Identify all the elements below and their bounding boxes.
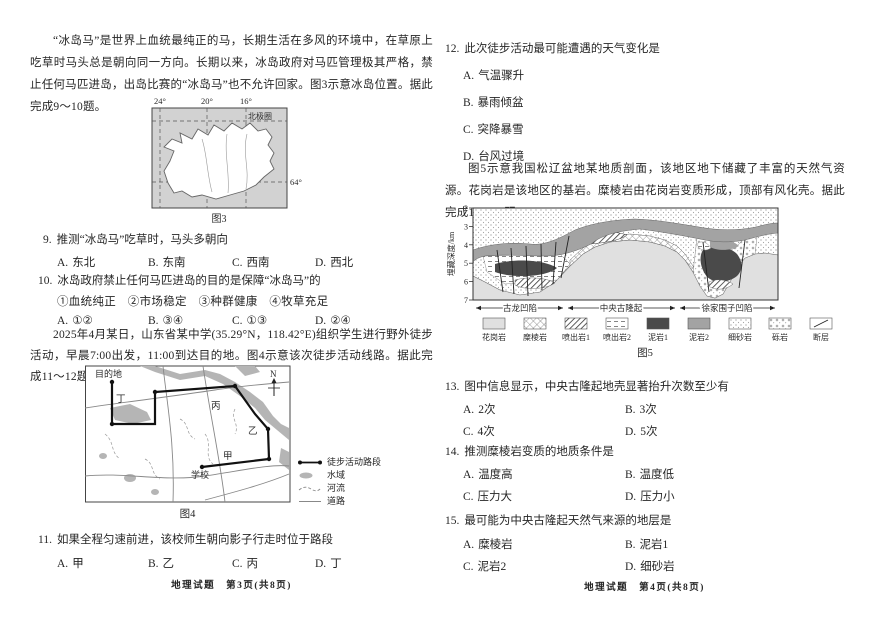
svg-text:花岗岩: 花岗岩 — [482, 332, 506, 342]
svg-text:6: 6 — [464, 278, 468, 287]
q14-option-b: B.温度低 — [625, 466, 674, 482]
figure-5-caption: 图5 — [445, 345, 845, 360]
q12-option-c: C.突降暴雪 — [463, 121, 524, 137]
destination-label: 目的地 — [95, 368, 122, 379]
svg-text:喷出岩2: 喷出岩2 — [603, 332, 631, 342]
question-9: 9.推测“冰岛马”吃草时，马头多朝向 — [43, 231, 228, 247]
question-10: 10.冰岛政府禁止任何马匹进岛的目的是保障“冰岛马”的 — [38, 272, 321, 288]
question-12-number: 12. — [445, 43, 459, 55]
question-14-stem: 推测糜棱岩变质的地质条件是 — [464, 446, 614, 458]
figure-5-legend: 花岗岩 糜棱岩 喷出岩1 喷出岩2 泥岩1 泥岩2 细砂岩 砾岩 断层 — [482, 318, 832, 342]
question-13-number: 13. — [445, 381, 459, 393]
q14-option-a: A.温度高 — [463, 466, 513, 482]
question-11-number: 11. — [38, 534, 52, 546]
q14-option-c: C.压力大 — [463, 488, 512, 504]
page-footer-right: 地理试题 第4页(共8页) — [443, 579, 846, 593]
question-15-stem: 最可能为中央古隆起天然气来源的地层是 — [464, 515, 671, 527]
figure-4-hiking-map: 目的地 丁 丙 乙 甲 学校 N — [85, 364, 430, 522]
figure-4-legend: 徒步活动路段 水域 河流 道路 — [297, 456, 381, 508]
legend-river: 河流 — [297, 482, 381, 495]
svg-text:断层: 断层 — [813, 332, 829, 342]
question-15-options-row1: A.糜棱岩 B.泥岩1 — [445, 536, 848, 552]
question-12-stem: 此次徒步活动最可能遭遇的天气变化是 — [464, 43, 660, 55]
question-9-stem: 推测“冰岛马”吃草时，马头多朝向 — [57, 234, 228, 246]
svg-text:7: 7 — [464, 296, 468, 305]
svg-text:古龙凹陷: 古龙凹陷 — [503, 303, 537, 313]
lon-tick-24: 24° — [154, 96, 166, 106]
question-10-stem: 冰岛政府禁止任何马匹进岛的目的是保障“冰岛马”的 — [57, 275, 320, 287]
question-14-options-row2: C.压力大 D.压力小 — [445, 488, 848, 504]
svg-text:糜棱岩: 糜棱岩 — [523, 332, 547, 342]
svg-text:5: 5 — [464, 259, 468, 268]
figure-4-caption: 图4 — [85, 506, 290, 521]
q15-option-b: B.泥岩1 — [625, 536, 668, 552]
svg-text:3: 3 — [464, 222, 468, 231]
segment-yi-label: 乙 — [248, 426, 258, 437]
svg-text:砾岩: 砾岩 — [772, 332, 788, 342]
svg-text:泥岩2: 泥岩2 — [689, 332, 709, 342]
svg-text:中央古隆起: 中央古隆起 — [600, 303, 643, 313]
q11-option-c: C.丙 — [232, 555, 258, 571]
section-body — [473, 208, 778, 300]
figure-3-caption: 图3 — [212, 213, 227, 225]
q14-option-d: D.压力小 — [625, 488, 675, 504]
question-13-options-row2: C.4次 D.5次 — [445, 423, 848, 439]
q11-option-d: D.丁 — [315, 555, 342, 571]
question-11-stem: 如果全程匀速前进，该校师生朝向影子行走时位于路段 — [57, 534, 333, 546]
question-11: 11.如果全程匀速前进，该校师生朝向影子行走时位于路段 — [38, 531, 333, 547]
tick-marks — [469, 208, 473, 300]
legend-road: 道路 — [297, 495, 381, 508]
svg-text:徐家围子凹陷: 徐家围子凹陷 — [701, 303, 752, 313]
q15-option-c: C.泥岩2 — [463, 558, 506, 574]
question-10-number: 10. — [38, 275, 52, 287]
route-symbol-icon — [297, 458, 323, 467]
lon-tick-20: 20° — [201, 96, 213, 106]
map-frame — [86, 366, 291, 502]
geologic-section-svg: 埋藏深度/km 2 3 4 5 6 7 — [445, 204, 845, 344]
question-15-number: 15. — [445, 515, 459, 527]
q15-option-d: D.细砂岩 — [625, 558, 675, 574]
q9-option-b: B.东南 — [148, 254, 186, 270]
segment-jia-label: 甲 — [223, 451, 233, 462]
question-10-circled-items: ①血统纯正 ②市场稳定 ③种群健康 ④牧草充足 — [57, 293, 328, 309]
svg-text:2: 2 — [464, 204, 468, 213]
question-14-options-row1: A.温度高 B.温度低 — [445, 466, 848, 482]
q12-option-a: A.气温骤升 — [463, 67, 524, 83]
q13-option-a: A.2次 — [463, 401, 495, 417]
svg-text:泥岩1: 泥岩1 — [648, 332, 668, 342]
q12-option-b: B.暴雨倾盆 — [463, 94, 524, 110]
question-14-number: 14. — [445, 446, 459, 458]
water-symbol-icon — [297, 471, 323, 480]
question-11-options: A.甲 B.乙 C.丙 D.丁 — [30, 555, 433, 571]
q13-option-b: B.3次 — [625, 401, 657, 417]
question-13: 13.图中信息显示，中央古隆起地壳显著抬升次数至少有 — [445, 378, 729, 394]
depth-axis-label: 埋藏深度/km — [446, 231, 456, 276]
question-14: 14.推测糜棱岩变质的地质条件是 — [445, 443, 614, 459]
q9-option-a: A.东北 — [57, 254, 95, 270]
legend-water: 水域 — [297, 469, 381, 482]
question-12: 12.此次徒步活动最可能遭遇的天气变化是 — [445, 40, 660, 56]
arctic-circle-label: 北极圈 — [248, 111, 272, 121]
question-9-options: A.东北 B.东南 C.西南 D.西北 — [30, 254, 433, 270]
svg-text:喷出岩1: 喷出岩1 — [562, 332, 590, 342]
q13-option-d: D.5次 — [625, 423, 657, 439]
figure-5-geologic-section: 埋藏深度/km 2 3 4 5 6 7 — [445, 204, 845, 362]
segment-ding-label: 丁 — [116, 395, 126, 405]
lon-tick-16: 16° — [240, 96, 252, 106]
question-15-options-row2: C.泥岩2 D.细砂岩 — [445, 558, 848, 574]
page-footer-left: 地理试题 第3页(共8页) — [30, 577, 433, 591]
q11-option-b: B.乙 — [148, 555, 174, 571]
segment-bing-label: 丙 — [211, 401, 221, 412]
school-label: 学校 — [191, 469, 209, 480]
q11-option-a: A.甲 — [57, 555, 84, 571]
figure-3-iceland-map: 24° 20° 16° 北极圈 64° 图3 — [142, 94, 312, 228]
question-15: 15.最可能为中央古隆起天然气来源的地层是 — [445, 512, 671, 528]
svg-text:4: 4 — [464, 241, 468, 250]
river-symbol-icon — [297, 484, 323, 493]
q15-option-a: A.糜棱岩 — [463, 536, 513, 552]
svg-text:N: N — [270, 369, 277, 379]
legend-route: 徒步活动路段 — [297, 456, 381, 469]
svg-text:细砂岩: 细砂岩 — [728, 332, 752, 342]
question-13-options-row1: A.2次 B.3次 — [445, 401, 848, 417]
lat-tick-64: 64° — [290, 177, 302, 187]
q9-option-c: C.西南 — [232, 254, 270, 270]
question-9-number: 9. — [43, 234, 52, 246]
q13-option-c: C.4次 — [463, 423, 495, 439]
q9-option-d: D.西北 — [315, 254, 353, 270]
exam-paper-scan: “冰岛马”是世界上血统最纯正的马，长期生活在多风的环境中，在草原上吃草时马头总是… — [0, 0, 870, 619]
iceland-map-svg: 24° 20° 16° 北极圈 64° 图3 — [142, 94, 312, 228]
question-13-stem: 图中信息显示，中央古隆起地壳显著抬升次数至少有 — [464, 381, 729, 393]
road-symbol-icon — [297, 497, 323, 506]
depth-axis-ticks: 2 3 4 5 6 7 — [464, 204, 468, 305]
